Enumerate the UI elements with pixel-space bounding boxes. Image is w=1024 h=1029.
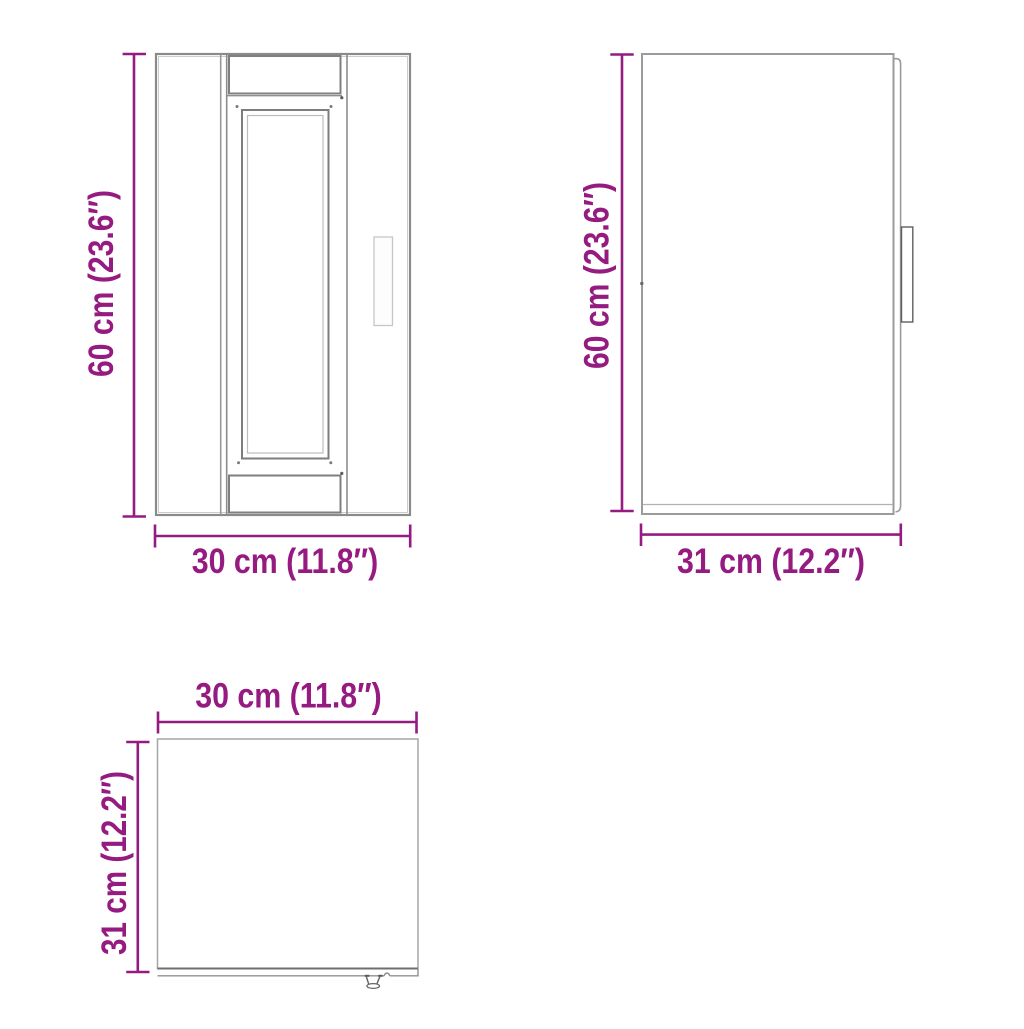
- svg-text:30 cm (11.8″): 30 cm (11.8″): [192, 542, 379, 581]
- svg-text:60 cm (23.6″): 60 cm (23.6″): [82, 190, 121, 377]
- svg-text:60 cm (23.6″): 60 cm (23.6″): [578, 182, 617, 369]
- svg-text:31 cm (12.2″): 31 cm (12.2″): [677, 542, 865, 581]
- svg-text:30 cm (11.8″): 30 cm (11.8″): [195, 677, 382, 716]
- svg-text:31 cm (12.2″): 31 cm (12.2″): [95, 771, 134, 955]
